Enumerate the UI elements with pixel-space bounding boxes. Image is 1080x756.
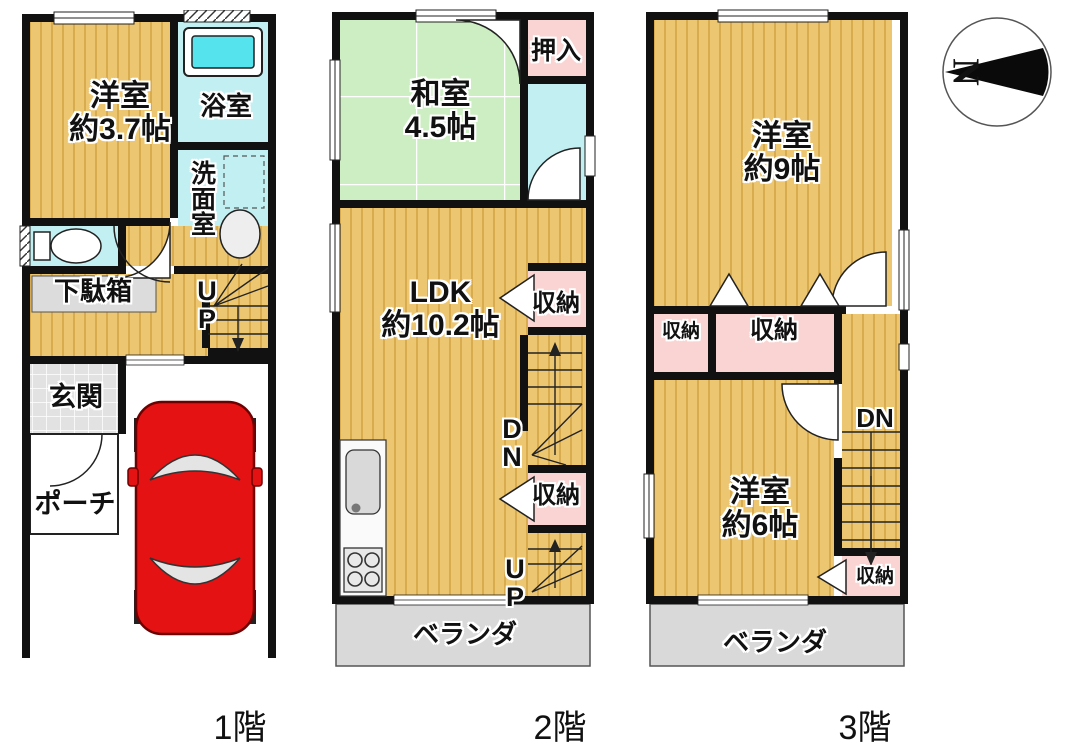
label-storage2-2f: 収納 bbox=[520, 483, 592, 509]
room-label-porch: ポーチ bbox=[28, 490, 122, 520]
room-label-yoshitsu9: 洋室約9帖 bbox=[712, 120, 852, 186]
room-label-oshiire: 押入 bbox=[518, 38, 594, 66]
room-label-yoshitsu-1f: 洋室約3.7帖 bbox=[40, 80, 200, 146]
room-label-wash: 洗面室 bbox=[190, 162, 217, 239]
floorplan-page: N 洋室約3.7帖 浴室 洗面室 下駄箱 UP 玄関 ポーチ 1階 和室4.5帖… bbox=[0, 0, 1080, 756]
room-label-yoshitsu6: 洋室約6帖 bbox=[690, 476, 830, 542]
label-up-1f: UP bbox=[196, 278, 218, 333]
toilet-icon-1f bbox=[34, 229, 101, 263]
label-storage-small-3f: 収納 bbox=[650, 322, 712, 343]
car-icon bbox=[128, 402, 262, 634]
label-storage1-2f: 収納 bbox=[520, 291, 592, 317]
label-dn-2f: DN bbox=[500, 416, 524, 471]
floor-label-2f: 2階 bbox=[500, 700, 620, 749]
floor-label-3f: 3階 bbox=[805, 700, 925, 749]
room-label-genkan: 玄関 bbox=[40, 383, 112, 413]
bathtub-icon bbox=[184, 28, 262, 76]
corridor-2f bbox=[528, 208, 586, 263]
compass-north-label: N bbox=[944, 58, 988, 85]
label-storage-low-3f: 収納 bbox=[843, 567, 907, 588]
room-label-washitsu: 和室4.5帖 bbox=[368, 78, 513, 144]
room-label-bath: 浴室 bbox=[186, 92, 266, 121]
label-storage-mid-3f: 収納 bbox=[728, 318, 820, 344]
kitchen-sink-icon bbox=[346, 450, 380, 514]
label-veranda-2f: ベランダ bbox=[395, 620, 535, 649]
floor-label-1f: 1階 bbox=[180, 700, 300, 749]
label-up-2f: UP bbox=[504, 556, 526, 611]
kitchen-counter bbox=[340, 440, 386, 596]
label-veranda-3f: ベランダ bbox=[705, 628, 845, 657]
room-label-ldk: LDK約10.2帖 bbox=[358, 276, 523, 342]
label-dn-3f: DN bbox=[843, 404, 907, 433]
label-getabako: 下駄箱 bbox=[38, 277, 148, 306]
